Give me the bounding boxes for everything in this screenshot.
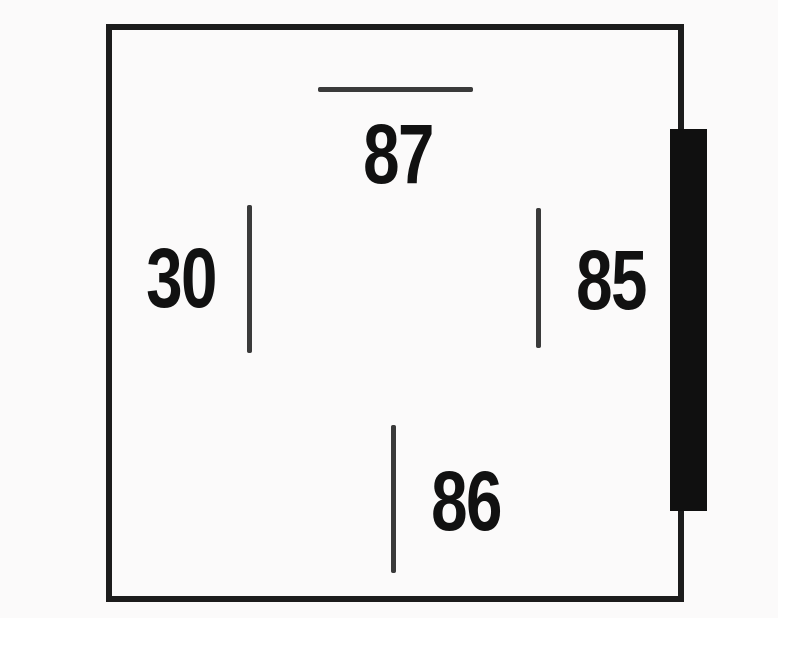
pin-87-label: 87 bbox=[363, 112, 433, 196]
relay-pinout-diagram: { "diagram": { "type": "relay-terminal-p… bbox=[0, 0, 800, 668]
pin-86-label: 86 bbox=[431, 459, 501, 543]
pin-86-terminal-line bbox=[391, 425, 396, 573]
relay-mounting-tab bbox=[670, 129, 707, 511]
pin-30-terminal-line bbox=[247, 205, 252, 353]
pin-87-terminal-line bbox=[318, 87, 473, 92]
pin-30-label: 30 bbox=[146, 236, 216, 320]
pin-85-terminal-line bbox=[536, 208, 541, 348]
pin-85-label: 85 bbox=[576, 238, 646, 322]
